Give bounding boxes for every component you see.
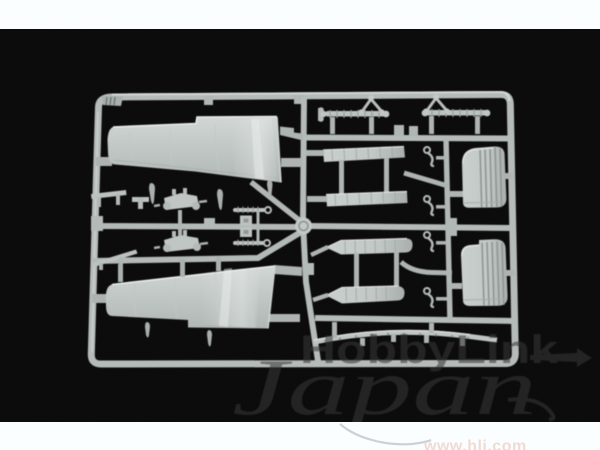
- svg-text:Japan: Japan: [232, 344, 537, 432]
- svg-text:www.hlj.com: www.hlj.com: [423, 438, 527, 450]
